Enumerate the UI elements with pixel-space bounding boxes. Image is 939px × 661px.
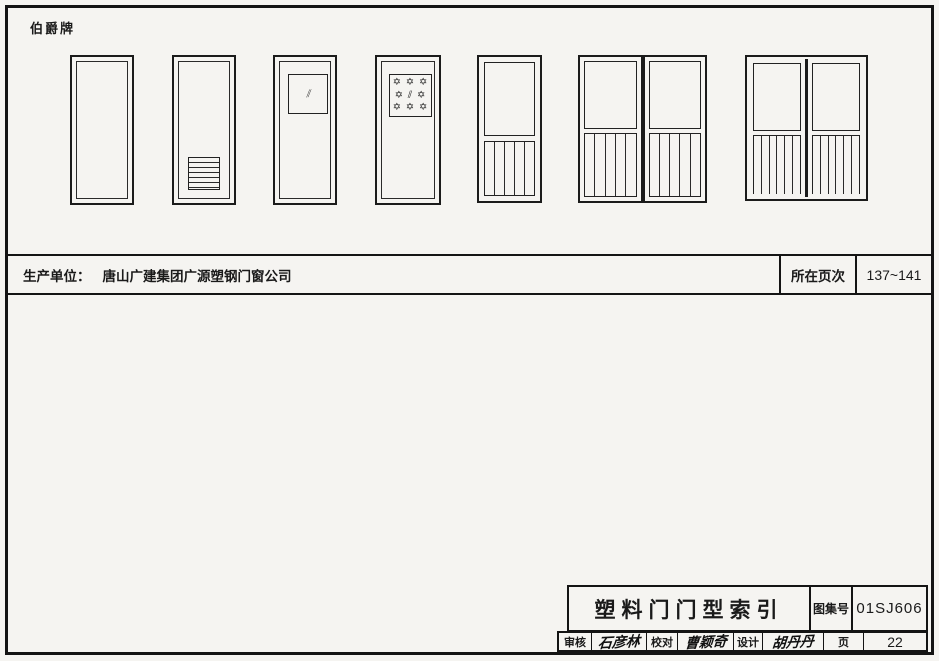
door-inner-frame — [76, 61, 128, 199]
glass-hatch-icon: ⫽ — [306, 88, 311, 99]
star-pattern-icon: ✡ ✡ ✡ — [393, 103, 429, 113]
producer-company: 唐山广建集团广源塑钢门窗公司 — [103, 265, 292, 285]
door-drawing-star-glass: ✡ ✡ ✡ ✡ ⫽ ✡ ✡ ✡ ✡ — [375, 55, 441, 205]
louver-grille-icon — [188, 157, 220, 190]
title-block: 塑料门门型索引 图集号 01SJ606 — [567, 585, 928, 632]
sheet-title: 塑料门门型索引 — [569, 587, 809, 630]
page-range-label: 所在页次 — [779, 256, 855, 293]
proof-label: 校对 — [646, 633, 677, 650]
page-range-value: 137~141 — [855, 256, 934, 293]
door-glass-panel — [812, 63, 860, 131]
decorative-star-glass-panel: ✡ ✡ ✡ ✡ ⫽ ✡ ✡ ✡ ✡ — [389, 74, 432, 117]
producer-row: 生产单位： 唐山广建集团广源塑钢门窗公司 所在页次 137~141 — [5, 254, 934, 295]
door-drawing-vision-panel: ⫽ — [273, 55, 337, 205]
door-half-right — [808, 59, 864, 197]
design-label: 设计 — [733, 633, 762, 650]
door-glass-panel — [484, 62, 535, 136]
door-batten-panel — [484, 141, 535, 196]
page-label: 页 — [823, 633, 863, 650]
door-leaf-right — [643, 55, 708, 203]
door-batten-panel — [649, 133, 702, 197]
door-glass-panel — [584, 61, 637, 129]
door-glass-panel — [753, 63, 801, 131]
star-pattern-icon: ✡ ✡ ✡ — [393, 78, 429, 88]
door-inner-frame — [749, 59, 864, 197]
atlas-page: { "page": { "brand": "伯爵牌", "producer_ro… — [0, 0, 939, 661]
door-batten-panel — [584, 133, 637, 197]
door-drawing-flush-panel — [70, 55, 134, 205]
door-drawing-half-glass — [477, 55, 542, 203]
door-drawing-louver — [172, 55, 236, 205]
door-half-left — [749, 59, 808, 197]
producer-cell: 生产单位： 唐山广建集团广源塑钢门窗公司 — [5, 256, 779, 293]
door-drawing-double-leaf — [578, 55, 707, 203]
atlas-number-value: 01SJ606 — [851, 587, 926, 630]
review-signature: 石彦林 — [591, 633, 646, 650]
producer-label: 生产单位： — [23, 265, 91, 285]
door-batten-panel — [753, 135, 801, 194]
proof-signature: 曹颖奇 — [677, 633, 733, 650]
door-leaf-left — [578, 55, 643, 203]
atlas-number-label: 图集号 — [809, 587, 851, 630]
door-drawing-double-shared-frame — [745, 55, 868, 201]
page-number: 22 — [863, 633, 926, 650]
review-label: 审核 — [559, 633, 591, 650]
brand-label: 伯爵牌 — [30, 18, 75, 37]
door-glass-panel — [649, 61, 702, 129]
door-batten-panel — [812, 135, 860, 194]
star-pattern-icon: ✡ ⫽ ✡ — [395, 91, 427, 101]
design-signature: 胡丹丹 — [762, 633, 823, 650]
signature-row: 审核 石彦林 校对 曹颖奇 设计 胡丹丹 页 22 — [557, 631, 928, 652]
glass-vision-panel: ⫽ — [288, 74, 328, 114]
